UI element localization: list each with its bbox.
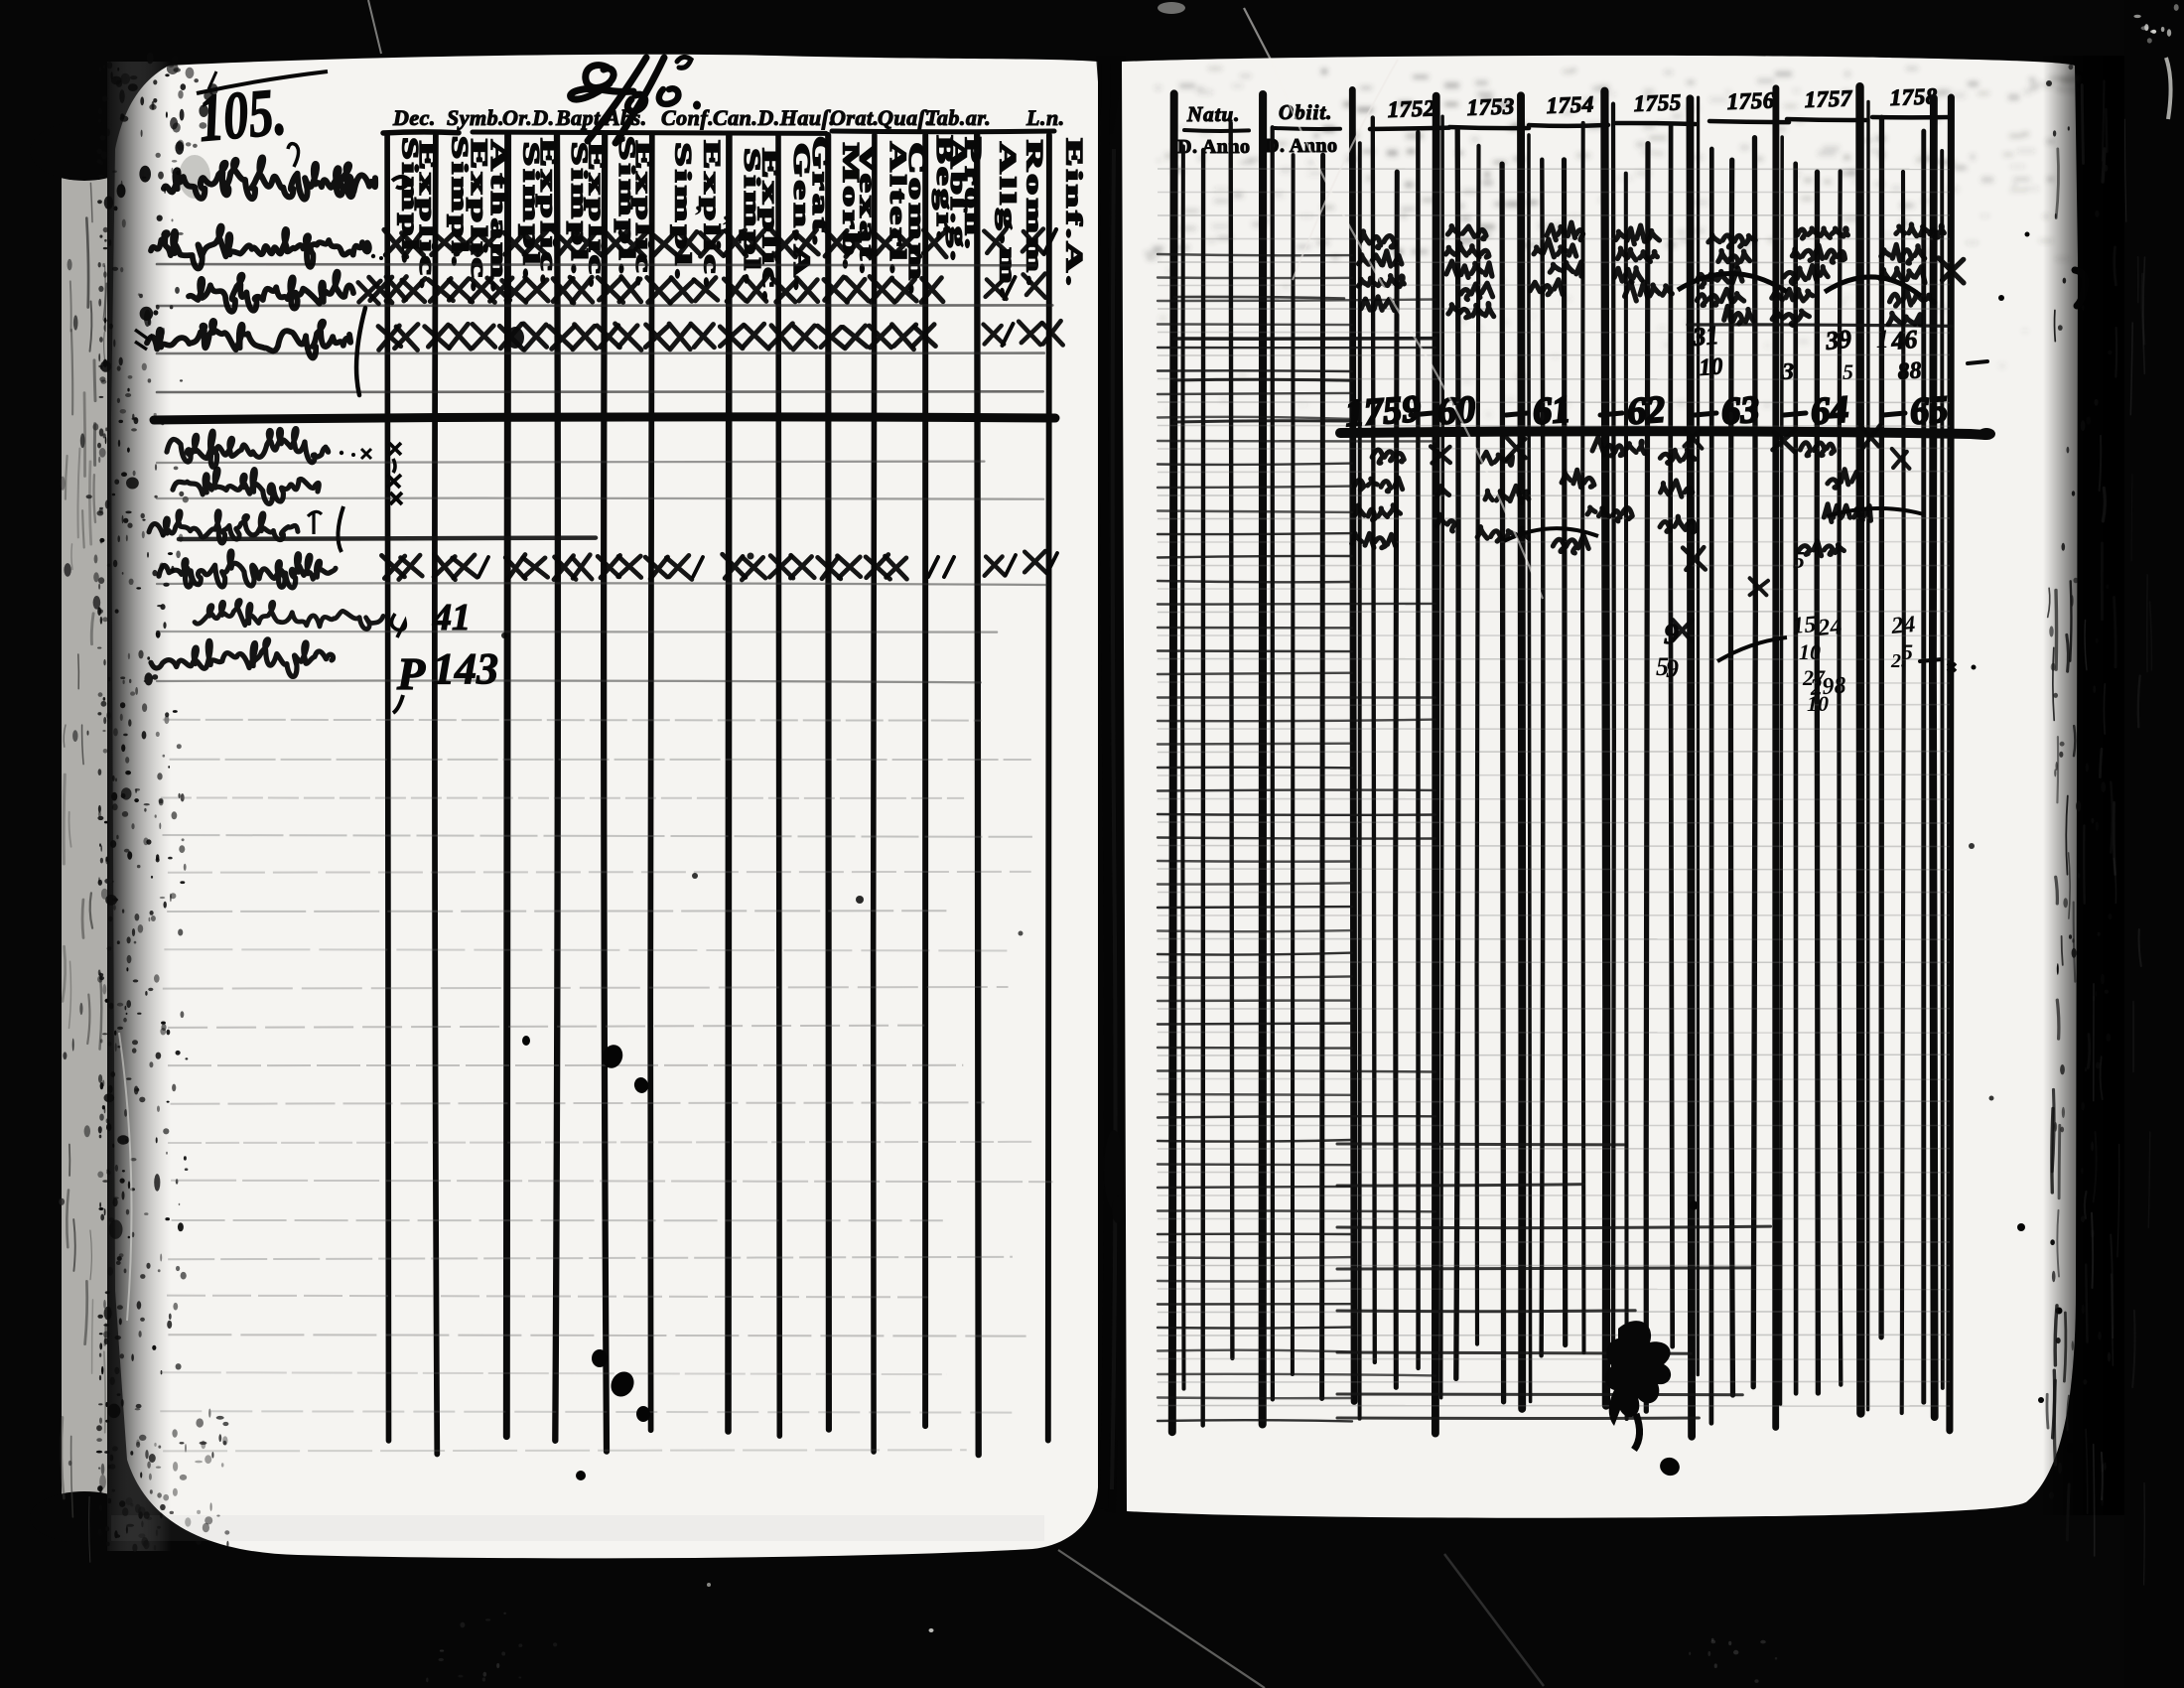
svg-text:Or.D.: Or.D. [502, 105, 555, 130]
svg-text:24: 24 [1816, 614, 1843, 641]
svg-text:1755: 1755 [1633, 89, 1682, 116]
svg-text:10: 10 [1799, 639, 1821, 664]
svg-text:,: , [723, 195, 731, 227]
svg-text:1754: 1754 [1546, 91, 1594, 118]
svg-text:Pron.: Pron. [960, 137, 985, 252]
svg-text:Conf.: Conf. [661, 105, 714, 130]
svg-text:41: 41 [432, 597, 471, 638]
svg-text:15: 15 [1791, 612, 1817, 639]
svg-text:46: 46 [1889, 325, 1918, 355]
svg-text:298: 298 [1809, 673, 1847, 702]
svg-text:143: 143 [433, 644, 498, 693]
svg-text:Can.D.Hauſ.: Can.D.Hauſ. [713, 105, 835, 130]
svg-text:1752: 1752 [1387, 95, 1435, 122]
svg-text:D. Anno: D. Anno [1177, 136, 1251, 158]
svg-text:64: 64 [1810, 388, 1850, 433]
svg-text:Symb.: Symb. [447, 105, 504, 130]
svg-text:Simpl.: Simpl. [670, 142, 696, 282]
svg-text:1757: 1757 [1804, 85, 1853, 112]
svg-text:D. Anno: D. Anno [1265, 135, 1338, 157]
svg-text:39: 39 [1824, 324, 1853, 355]
svg-text:Comm.: Comm. [904, 142, 930, 298]
svg-text:9: 9 [1666, 654, 1679, 683]
svg-text:P: P [396, 648, 426, 699]
svg-text:24: 24 [1889, 612, 1916, 639]
svg-text:5: 5 [1793, 548, 1805, 574]
svg-text:Explic.: Explic. [631, 141, 656, 290]
svg-text:,: , [695, 185, 703, 217]
svg-text:31: 31 [1691, 321, 1719, 352]
svg-text:Explic.: Explic. [584, 142, 609, 291]
svg-text:2.: 2. [1890, 650, 1906, 672]
svg-text:Einf.A.: Einf.A. [1061, 138, 1086, 289]
svg-text:3: 3 [1781, 359, 1794, 385]
svg-text:63: 63 [1720, 388, 1761, 433]
svg-text:1753: 1753 [1466, 93, 1515, 120]
svg-text:Explic.: Explic. [415, 141, 440, 292]
svg-text:Obiit.: Obiit. [1279, 100, 1332, 124]
svg-text:5: 5 [1843, 359, 1853, 384]
svg-text:61: 61 [1532, 388, 1572, 433]
svg-text:Romm.: Romm. [1022, 140, 1046, 289]
svg-text:Dec.: Dec. [392, 105, 436, 130]
svg-text:Tab.ar.: Tab.ar. [925, 105, 991, 130]
svg-text:Atham.: Atham. [486, 140, 511, 296]
svg-text:10: 10 [1699, 353, 1724, 381]
svg-text:L.n.: L.n. [1025, 105, 1065, 130]
svg-text:1: 1 [1876, 325, 1889, 353]
svg-text:1756: 1756 [1726, 87, 1775, 114]
svg-text:,: , [709, 191, 717, 223]
svg-text:Quaſ.: Quaſ. [878, 105, 931, 130]
svg-text:88: 88 [1897, 357, 1923, 385]
svg-text:Orat.: Orat. [830, 105, 880, 130]
svg-text:65: 65 [1909, 388, 1950, 433]
